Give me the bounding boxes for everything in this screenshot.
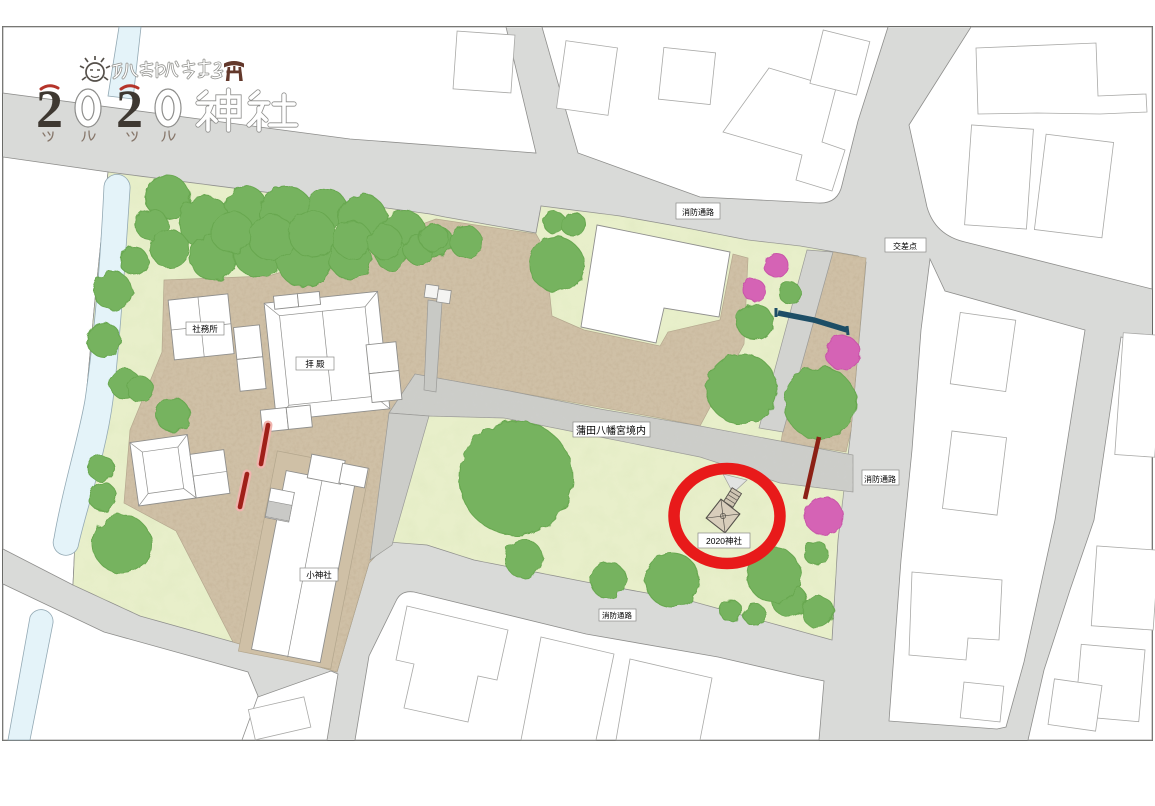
svg-text:蒲田八幡宮境内: 蒲田八幡宮境内 [576, 424, 646, 437]
svg-text:拝 殿: 拝 殿 [305, 359, 325, 369]
svg-text:小神社: 小神社 [306, 570, 332, 580]
svg-text:社務所: 社務所 [192, 324, 218, 334]
svg-text:消防通路: 消防通路 [864, 474, 896, 484]
svg-text:消防通路: 消防通路 [602, 610, 632, 620]
svg-text:2020神社: 2020神社 [706, 536, 742, 546]
svg-text:交差点: 交差点 [893, 241, 917, 251]
svg-text:消防通路: 消防通路 [682, 207, 714, 217]
